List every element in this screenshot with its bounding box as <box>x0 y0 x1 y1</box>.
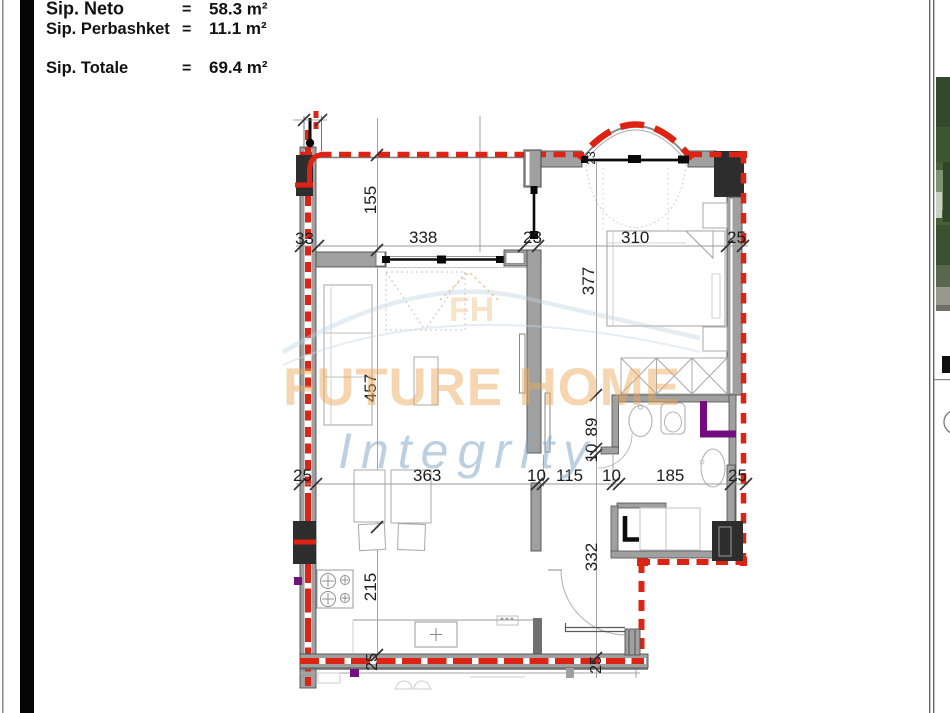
svg-text:11.1 m²: 11.1 m² <box>209 19 267 38</box>
svg-text:377: 377 <box>579 267 598 295</box>
svg-text:155: 155 <box>361 186 380 214</box>
svg-text:25: 25 <box>727 228 746 247</box>
svg-text:215: 215 <box>361 573 380 601</box>
svg-text:Sip. Totale: Sip. Totale <box>46 59 128 77</box>
svg-text:23: 23 <box>584 151 598 165</box>
svg-text:33: 33 <box>295 229 314 248</box>
svg-text:69.4 m²: 69.4 m² <box>209 58 268 77</box>
svg-text:FUTURE HOME: FUTURE HOME <box>283 358 680 417</box>
svg-text:Sip. Neto: Sip. Neto <box>46 0 124 19</box>
svg-text:FH: FH <box>449 291 494 329</box>
svg-text:25: 25 <box>293 466 312 485</box>
svg-text:25: 25 <box>728 466 747 485</box>
svg-text:=: = <box>182 1 191 18</box>
svg-text:58.3 m²: 58.3 m² <box>209 0 268 19</box>
svg-text:185: 185 <box>656 466 684 485</box>
svg-text:338: 338 <box>409 228 437 247</box>
svg-text:Integrity: Integrity <box>338 423 591 479</box>
svg-text:=: = <box>182 60 191 77</box>
svg-text:23: 23 <box>523 228 542 247</box>
svg-text:332: 332 <box>582 543 601 571</box>
svg-text:Sip. Perbashket: Sip. Perbashket <box>46 20 170 38</box>
svg-text:25: 25 <box>364 653 381 671</box>
svg-text:310: 310 <box>621 228 649 247</box>
svg-text:10: 10 <box>602 466 621 485</box>
svg-text:=: = <box>182 21 191 38</box>
